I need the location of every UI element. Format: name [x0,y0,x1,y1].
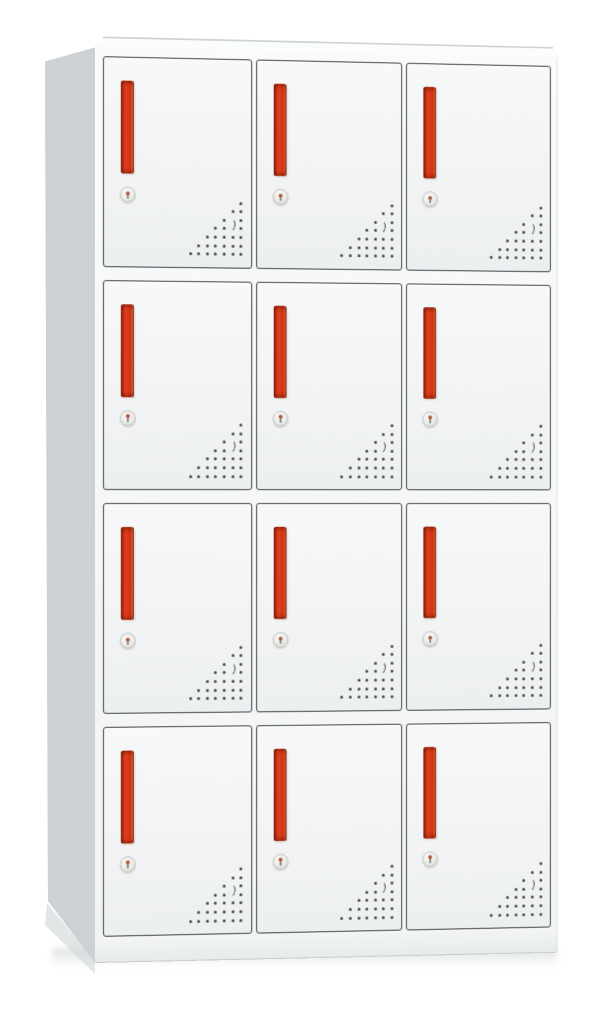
vent-hole [498,905,501,908]
vent-crescent-mark [524,659,536,674]
vent-hole [240,645,243,648]
vent-hole [240,680,243,683]
vent-hole [523,248,526,251]
door-handle [121,527,134,620]
vent-holes [490,425,543,480]
vent-holes [189,201,243,257]
vent-hole [349,916,352,919]
vent-hole [498,248,501,251]
vent-hole [531,904,534,907]
door-lock [423,191,438,207]
vent-hole [365,458,368,461]
locker-door [256,281,403,490]
vent-hole [531,677,534,680]
vent-hole [539,694,542,697]
vent-hole [514,677,517,680]
vent-hole [498,913,501,916]
vent-hole [531,896,534,899]
vent-hole [539,862,542,865]
keyhole [278,858,282,862]
vent-hole [390,899,393,902]
vent-hole [531,686,534,689]
vent-hole [365,237,368,240]
vent-hole [240,227,243,230]
vent-hole [390,229,393,232]
vent-hole [539,442,542,445]
vent-hole [390,687,393,690]
vent-hole [506,467,509,470]
vent-hole [240,876,243,879]
vent-crescent-mark [224,217,236,232]
vent-hole [197,466,200,469]
vent-hole [514,669,517,672]
vent-hole [514,896,517,899]
vent-hole [374,687,377,690]
vent-hole [506,686,509,689]
vent-hole [506,248,509,251]
door-handle [273,305,286,397]
vent-hole [531,256,534,259]
door-handle [273,527,286,619]
vent-holes [340,865,393,921]
vent-hole [390,204,393,207]
vent-hole [206,688,209,691]
locker-door [103,280,252,491]
vent-hole [374,475,377,478]
vent-hole [539,652,542,655]
door-lock [272,853,288,869]
vent-hole [357,237,360,240]
vent-hole [223,475,226,478]
vent-hole [357,475,360,478]
vent-hole [390,475,393,478]
vent-hole [539,669,542,672]
vent-hole [206,680,209,683]
vent-crescent-mark [375,439,387,454]
vent-hole [531,248,534,251]
vent-hole [214,902,217,905]
door-lock [120,186,136,202]
vent-hole [514,913,517,916]
vent-hole [374,255,377,258]
door-handle [424,527,437,619]
vent-hole [539,248,542,251]
vent-hole [382,678,385,681]
locker-door [103,725,252,937]
vent-hole [365,687,368,690]
vent-hole [382,475,385,478]
vent-hole [206,235,209,238]
vent-hole [365,467,368,470]
door-handle [273,84,286,176]
vent-holes [340,203,393,259]
cabinet-front [95,47,558,963]
locker-door [406,63,551,272]
locker-door [256,723,403,933]
vent-hole [240,236,243,239]
vent-hole [382,433,385,436]
vent-hole [357,696,360,699]
vent-hole [214,893,217,896]
vent-hole [231,236,234,239]
vent-hole [365,899,368,902]
vent-hole [240,697,243,700]
vent-hole [349,687,352,690]
vent-hole [240,202,243,205]
door-lock [120,633,136,649]
vent-hole [206,902,209,905]
vent-hole [523,240,526,243]
vent-crescent-mark [224,883,236,898]
vent-hole [390,221,393,224]
vent-hole [523,256,526,259]
vent-hole [539,896,542,899]
vent-hole [223,253,226,256]
vent-hole [539,870,542,873]
vent-hole [214,697,217,700]
vent-hole [365,670,368,673]
vent-hole [382,458,385,461]
vent-hole [523,913,526,916]
vent-hole [498,694,501,697]
vent-hole [197,919,200,922]
vent-hole [349,254,352,257]
keyhole [126,414,130,418]
vent-hole [374,907,377,910]
vent-hole [206,697,209,700]
vent-hole [240,424,243,427]
vent-hole [382,467,385,470]
vent-hole [223,688,226,691]
locker-door [103,503,252,713]
vent-hole [374,467,377,470]
vent-hole [206,458,209,461]
vent-hole [390,678,393,681]
vent-hole [390,916,393,919]
vent-hole [390,467,393,470]
vent-hole [490,256,493,259]
vent-hole [514,888,517,891]
vent-hole [374,238,377,241]
vent-crescent-mark [524,878,536,893]
vent-hole [390,865,393,868]
vent-hole [206,919,209,922]
vent-holes [189,867,243,924]
vent-hole [506,694,509,697]
vent-hole [531,433,534,436]
vent-hole [189,252,192,255]
vent-hole [349,475,352,478]
vent-hole [357,908,360,911]
vent-hole [539,887,542,890]
vent-hole [365,246,368,249]
vent-hole [189,697,192,700]
vent-hole [539,223,542,226]
vent-hole [223,236,226,239]
keyhole [126,191,130,195]
vent-hole [539,231,542,234]
vent-hole [357,679,360,682]
vent-hole [231,458,234,461]
vent-hole [390,695,393,698]
vent-hole [349,908,352,911]
vent-hole [490,475,493,478]
keyhole [278,415,282,419]
vent-hole [390,441,393,444]
vent-hole [382,907,385,910]
vent-hole [506,475,509,478]
vent-hole [231,680,234,683]
vent-hole [365,916,368,919]
vent-hole [539,660,542,663]
door-handle [424,307,437,399]
vent-hole [240,902,243,905]
vent-hole [231,876,234,879]
vent-hole [539,475,542,478]
door-handle [424,87,437,179]
vent-hole [357,466,360,469]
vent-hole [390,255,393,258]
vent-hole [240,688,243,691]
vent-hole [523,467,526,470]
vent-hole [231,210,234,213]
vent-hole [231,697,234,700]
vent-hole [340,475,343,478]
vent-hole [214,227,217,230]
vent-hole [223,244,226,247]
vent-hole [240,910,243,913]
keyhole [429,196,433,200]
vent-hole [382,916,385,919]
vent-hole [390,653,393,656]
vent-hole [374,246,377,249]
vent-hole [382,687,385,690]
vent-hole [349,246,352,249]
vent-hole [357,254,360,257]
vent-hole [390,458,393,461]
vent-hole [498,467,501,470]
vent-hole [523,458,526,461]
door-grid [103,56,551,937]
vent-hole [231,466,234,469]
vent-hole [240,432,243,435]
vent-hole [539,433,542,436]
vent-hole [390,873,393,876]
vent-hole [390,907,393,910]
vent-hole [231,244,234,247]
vent-hole [531,871,534,874]
door-handle [424,746,437,838]
vent-hole [514,450,517,453]
vent-hole [357,916,360,919]
vent-hole [240,441,243,444]
vent-hole [365,475,368,478]
vent-hole [214,688,217,691]
vent-hole [498,686,501,689]
locker-door [406,722,551,931]
vent-holes [340,424,393,479]
vent-hole [231,688,234,691]
vent-crescent-mark [524,440,536,455]
vent-hole [390,882,393,885]
vent-hole [523,475,526,478]
vent-hole [390,670,393,673]
vent-hole [531,458,534,461]
vent-hole [390,246,393,249]
door-lock [272,189,288,205]
vent-hole [390,424,393,427]
keyhole [126,860,130,864]
vent-hole [539,643,542,646]
vent-hole [390,238,393,241]
vent-hole [214,911,217,914]
vent-hole [214,671,217,674]
vent-hole [231,919,234,922]
vent-hole [514,686,517,689]
vent-hole [531,694,534,697]
vent-hole [240,253,243,256]
keyhole [278,193,282,197]
vent-hole [206,252,209,255]
vent-hole [223,910,226,913]
vent-hole [197,244,200,247]
vent-hole [365,908,368,911]
locker-door [406,283,551,490]
vent-hole [240,654,243,657]
keyhole [429,635,433,639]
vent-crescent-mark [375,219,387,234]
vent-holes [490,643,543,698]
vent-hole [539,240,542,243]
door-lock [120,410,136,426]
vent-hole [382,246,385,249]
vent-hole [390,661,393,664]
vent-hole [382,653,385,656]
vent-hole [349,696,352,699]
vent-hole [514,231,517,234]
door-handle [273,748,286,840]
vent-hole [231,475,234,478]
vent-hole [365,696,368,699]
vent-hole [214,475,217,478]
vent-hole [382,212,385,215]
vent-hole [498,256,501,259]
vent-hole [340,254,343,257]
keyhole [429,415,433,419]
locker-door [103,56,252,268]
vent-hole [214,680,217,683]
vent-hole [498,475,501,478]
keyhole [126,637,130,641]
vent-hole [514,905,517,908]
vent-hole [240,893,243,896]
vent-hole [223,697,226,700]
vent-hole [514,467,517,470]
vent-hole [374,899,377,902]
vent-hole [539,458,542,461]
vent-hole [206,475,209,478]
vent-hole [539,450,542,453]
door-handle [121,304,134,397]
vent-hole [539,685,542,688]
vent-hole [390,212,393,215]
vent-hole [365,679,368,682]
vent-hole [506,896,509,899]
vent-hole [523,904,526,907]
vent-holes [490,205,543,261]
vent-holes [189,645,243,701]
vent-hole [240,671,243,674]
vent-hole [539,677,542,680]
vent-hole [214,458,217,461]
vent-crescent-mark [224,439,236,454]
vent-hole [189,475,192,478]
vent-hole [539,215,542,218]
vent-hole [490,914,493,917]
vent-hole [490,694,493,697]
vent-hole [240,244,243,247]
vent-hole [231,902,234,905]
door-lock [120,856,136,872]
door-handle [121,81,134,174]
vent-hole [240,458,243,461]
vent-hole [223,680,226,683]
vent-hole [514,458,517,461]
vent-hole [514,475,517,478]
door-handle [121,750,134,843]
vent-hole [214,919,217,922]
vent-hole [240,210,243,213]
vent-hole [357,687,360,690]
vent-holes [490,862,543,918]
vent-hole [214,449,217,452]
door-lock [423,411,438,427]
vent-hole [506,239,509,242]
vent-hole [240,884,243,887]
vent-hole [531,652,534,655]
vent-hole [531,913,534,916]
vent-hole [357,899,360,902]
vent-hole [240,919,243,922]
vent-hole [197,252,200,255]
vent-hole [531,467,534,470]
vent-hole [539,904,542,907]
vent-hole [240,867,243,870]
vent-hole [539,206,542,209]
vent-hole [539,879,542,882]
vent-hole [223,902,226,905]
vent-hole [539,467,542,470]
vent-hole [223,466,226,469]
vent-hole [390,450,393,453]
vent-hole [357,246,360,249]
vent-hole [365,450,368,453]
vent-hole [506,677,509,680]
vent-hole [197,689,200,692]
vent-hole [206,244,209,247]
vent-hole [223,919,226,922]
vent-hole [382,873,385,876]
vent-hole [231,654,234,657]
vent-hole [240,219,243,222]
vent-crescent-mark [375,880,387,895]
vent-hole [365,254,368,257]
vent-hole [206,911,209,914]
vent-hole [514,239,517,242]
vent-hole [374,695,377,698]
vent-hole [506,913,509,916]
vent-hole [374,916,377,919]
